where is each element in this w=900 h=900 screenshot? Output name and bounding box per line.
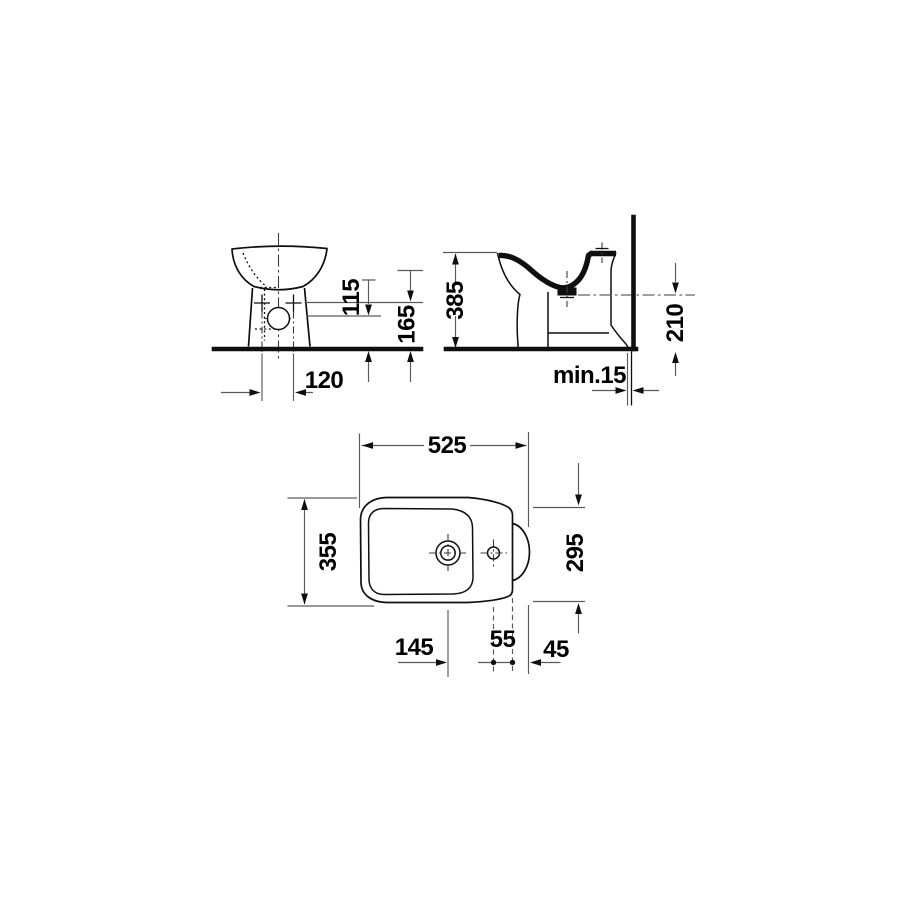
dim-120-label: 120 <box>305 367 344 394</box>
dim-525-label: 525 <box>428 432 467 459</box>
front-drain-hole <box>268 308 290 330</box>
dim-115-label: 115 <box>338 279 365 316</box>
side-view: 385 210 min.15 <box>442 217 695 406</box>
dim-165-label: 165 <box>394 305 421 344</box>
dim-55-right-dot <box>510 660 515 665</box>
plan-rear-bump <box>513 524 530 581</box>
dim-145-label: 145 <box>395 634 434 661</box>
dim-min15-label: min.15 <box>553 362 626 389</box>
dim-210-label: 210 <box>662 304 689 343</box>
dim-385-label: 385 <box>442 281 469 320</box>
dim-295-label: 295 <box>562 534 589 573</box>
dim-45-label: 45 <box>543 636 569 663</box>
dim-55-label: 55 <box>490 626 516 653</box>
bidet-technical-drawing: 115 165 120 385 210 min.15 <box>0 0 900 900</box>
front-view: 115 165 120 <box>214 233 423 401</box>
dim-355-label: 355 <box>315 533 342 572</box>
front-bowl <box>232 246 327 290</box>
plan-view: 525 355 295 145 55 45 <box>288 432 590 677</box>
dim-55-left-dot <box>491 660 496 665</box>
bidet-technical-drawing-page: 115 165 120 385 210 min.15 <box>0 0 900 900</box>
